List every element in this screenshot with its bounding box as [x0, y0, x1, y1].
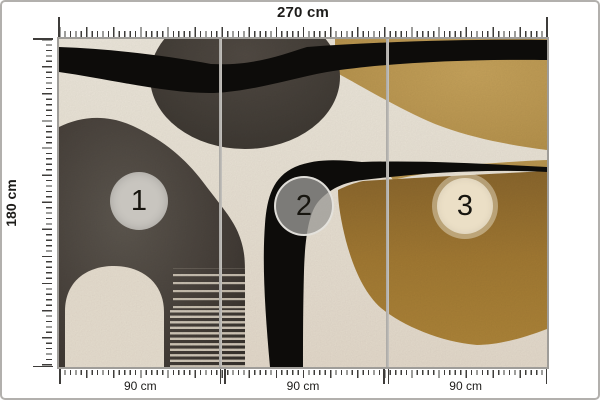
left-ruler-top-cap-tick	[33, 38, 53, 40]
top-ruler-left-cap-tick	[58, 17, 60, 37]
bottom-ruler-major-ticks	[59, 370, 547, 378]
top-ruler-major-ticks	[59, 27, 547, 37]
grain-texture	[59, 39, 547, 367]
top-ruler-right-cap-tick	[546, 17, 548, 37]
mural-artwork	[59, 39, 547, 367]
wall-mural-size-diagram: 270 cm 180 cm	[0, 0, 600, 400]
panel-width-label-2: 90 cm	[222, 379, 385, 393]
mural-frame	[57, 37, 549, 369]
left-ruler-bottom-cap-tick	[33, 366, 53, 368]
panel-width-label-1: 90 cm	[59, 379, 222, 393]
panel-width-label-3: 90 cm	[384, 379, 547, 393]
total-height-label: 180 cm	[3, 168, 19, 238]
left-ruler	[41, 39, 53, 367]
left-ruler-major-ticks	[42, 39, 52, 367]
total-width-label: 270 cm	[59, 4, 547, 21]
panel-width-labels: 90 cm 90 cm 90 cm	[59, 379, 547, 393]
